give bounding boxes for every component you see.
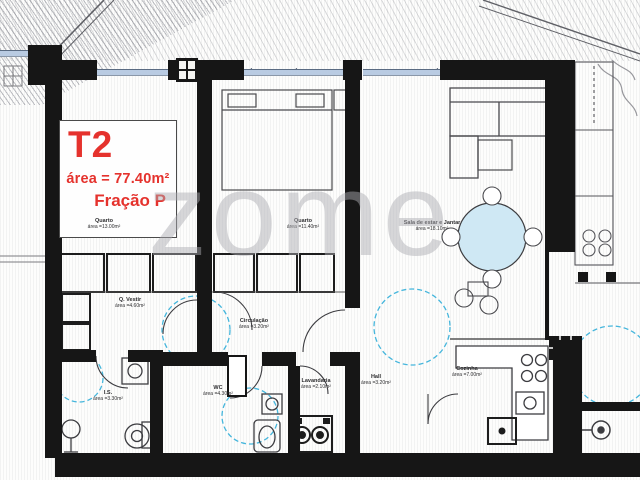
wall-corridor-bottom-2 [262,352,296,366]
wall-bottom [55,453,640,477]
wall-bath-wc [150,350,163,455]
room-label-quarto-1: Quarto área =13.00m² [88,218,121,230]
room-label-hall: Hall área =3.20m² [361,374,391,386]
room-label-cozinha: Cozinha área =7.00m² [452,366,482,378]
roof-diagonal-lines [44,0,640,62]
kitchen-counter [456,346,548,440]
wall-vestir-corridor [197,292,212,358]
wall-party-thin [545,252,549,340]
wall-neighbor-stub [582,402,640,411]
room-label-circulacao: Circulação área =3.20m² [239,318,269,330]
terrain-squiggles [598,60,637,116]
zome-watermark: zome [148,156,453,274]
site-detail-left [0,66,45,262]
room-label-is: I.S. área =3.30m² [93,390,123,402]
room-label-wc: WC área =4.30m² [203,385,233,397]
closet-q-vestir [62,294,90,350]
wall-pane-square [176,58,198,82]
wall-top-d [440,60,562,80]
window-quarto-2 [244,69,343,76]
wall-q2-sala-lower [345,352,360,455]
floor-plan: T2 área = 77.40m² Fração P Quarto área =… [0,0,640,480]
room-label-q-vestir: Q. Vestir área =4.60m² [115,297,145,309]
sofa [450,88,548,178]
dining-table [442,187,542,288]
neighbor-kitchen [575,62,640,283]
wall-bath-top-1 [60,350,96,362]
wall-bath-top-2 [128,350,152,362]
bathroom-fixtures [62,358,151,452]
wall-top-c [343,60,362,80]
wall-corridor-bottom-3 [330,352,347,366]
window-quarto-1 [97,69,168,76]
neighbor-basin [582,421,610,439]
wall-party-upper [545,60,575,252]
room-label-lavandaria: Lavandaria área =2.10m² [301,378,331,390]
window-sala [363,69,440,76]
coffee-table [478,140,512,170]
wall-wc-laundry [288,366,300,455]
window-outside-left [0,50,28,57]
